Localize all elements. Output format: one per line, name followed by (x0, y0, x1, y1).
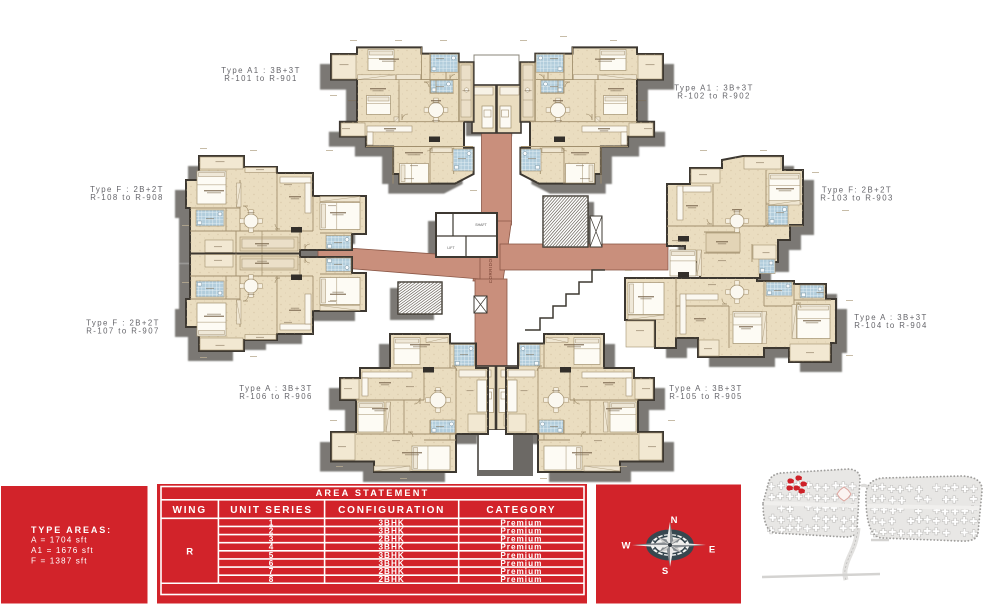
svg-text:Premium: Premium (500, 575, 542, 584)
svg-text:A1 = 1676 sft: A1 = 1676 sft (31, 546, 94, 555)
svg-text:R-105 to R-905: R-105 to R-905 (669, 392, 743, 401)
svg-text:R-107 to R-907: R-107 to R-907 (86, 327, 160, 336)
svg-text:R: R (186, 546, 193, 557)
svg-text:S: S (662, 566, 668, 577)
svg-text:TYPE AREAS:: TYPE AREAS: (31, 525, 112, 535)
svg-text:UNIT SERIES: UNIT SERIES (230, 505, 313, 516)
svg-text:N: N (671, 515, 678, 526)
svg-text:R-101 to R-901: R-101 to R-901 (224, 74, 298, 83)
svg-text:WING: WING (172, 505, 206, 516)
svg-text:LIFT: LIFT (447, 246, 455, 250)
svg-text:F = 1387 sft: F = 1387 sft (31, 556, 88, 565)
svg-text:A = 1704 sft: A = 1704 sft (31, 536, 88, 545)
svg-text:R-102 to R-902: R-102 to R-902 (677, 92, 751, 101)
svg-text:R-104 to R-904: R-104 to R-904 (854, 321, 928, 330)
svg-text:2BHK: 2BHK (379, 575, 405, 584)
svg-text:CATEGORY: CATEGORY (486, 505, 556, 516)
svg-text:R-106 to R-906: R-106 to R-906 (239, 392, 313, 401)
svg-text:R-103 to R-903: R-103 to R-903 (820, 194, 894, 203)
svg-text:SHAFT: SHAFT (475, 223, 487, 227)
svg-text:W: W (622, 541, 631, 552)
svg-text:R-108 to R-908: R-108 to R-908 (90, 193, 164, 202)
svg-text:8: 8 (269, 575, 275, 584)
svg-text:E: E (709, 545, 715, 556)
svg-text:CONFIGURATION: CONFIGURATION (338, 505, 445, 516)
svg-text:AREA STATEMENT: AREA STATEMENT (316, 488, 430, 498)
